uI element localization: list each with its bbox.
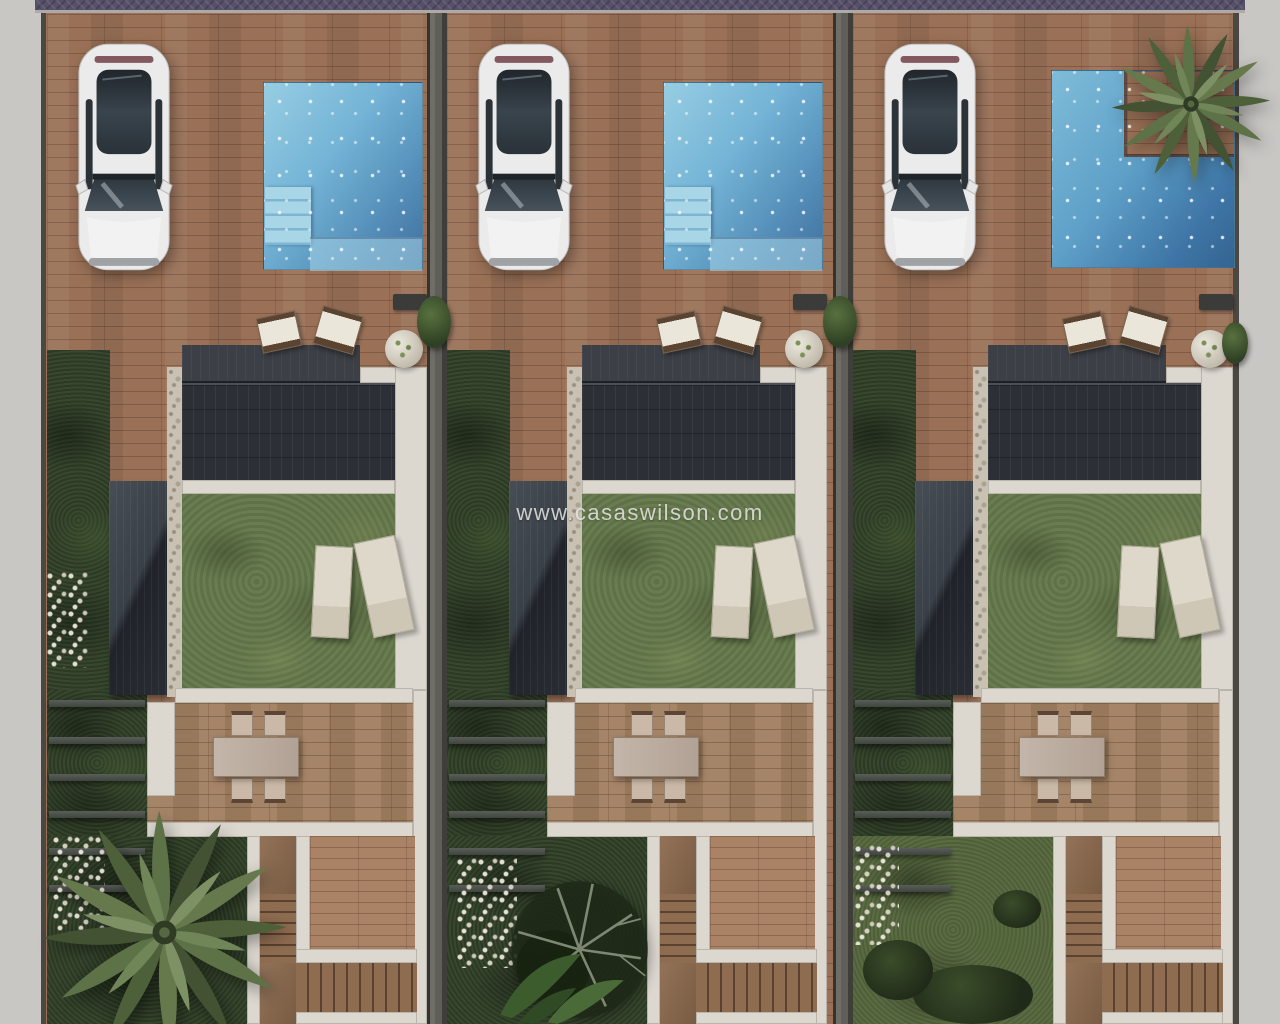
wall-shrub [823, 296, 857, 348]
dining-chair [1070, 711, 1092, 736]
tiled-roof [988, 383, 1201, 480]
plant [789, 334, 819, 364]
dining-table [613, 737, 699, 777]
site-plan-render: www.casaswilson.com [0, 0, 1280, 1024]
white-car [73, 38, 175, 278]
tiled-roof [582, 383, 795, 480]
white-flowers [47, 572, 89, 668]
white-path [547, 702, 575, 796]
pergola-beam [449, 774, 545, 781]
brick-patio [310, 836, 415, 949]
pergola-beam [49, 737, 145, 744]
sun-lounger [311, 545, 354, 639]
pool-shelf [310, 237, 422, 271]
wall-shrub [417, 296, 451, 348]
white-path [296, 836, 310, 963]
white-path [1053, 836, 1066, 1024]
white-path [360, 367, 397, 383]
stairs-horizontal [296, 963, 417, 1012]
white-path [575, 688, 813, 703]
white-path [1102, 1012, 1223, 1024]
pergola-beam [449, 737, 545, 744]
white-path [696, 949, 817, 963]
villa-unit-1 [47, 0, 427, 1024]
plant [1195, 334, 1225, 364]
stairs-horizontal [696, 963, 817, 1012]
pool-steps [265, 187, 311, 245]
potted-plant [385, 330, 423, 368]
stairs-vertical [1066, 836, 1102, 1024]
dining-chair [664, 778, 686, 803]
party-wall [427, 0, 447, 1024]
white-path [1166, 367, 1203, 383]
white-path [1102, 836, 1116, 963]
potted-plant [785, 330, 823, 368]
dining-chair [631, 778, 653, 803]
swimming-pool [663, 82, 823, 270]
party-wall [833, 0, 853, 1024]
stone-wall [973, 367, 988, 697]
stone-wall [167, 367, 182, 697]
street-roof-strip [35, 0, 1245, 13]
palm-tree [32, 800, 297, 1024]
door-mat [1199, 294, 1233, 310]
dining-table [213, 737, 299, 777]
pergola-beam [449, 848, 545, 855]
pergola-beam [449, 811, 545, 818]
sun-lounger [711, 545, 754, 639]
brick-patio [710, 836, 815, 949]
side-garden-strip [853, 350, 916, 691]
dining-chair [631, 711, 653, 736]
dining-chair [231, 711, 253, 736]
white-path [296, 1012, 417, 1024]
white-path [296, 949, 417, 963]
white-path [953, 702, 981, 796]
palm-tree [1105, 18, 1277, 190]
white-path [1102, 949, 1223, 963]
dining-chair [1070, 778, 1092, 803]
stone-wall [567, 367, 582, 697]
plant [389, 334, 419, 364]
white-path [696, 836, 710, 963]
pergola-beam [49, 700, 145, 707]
white-car [473, 38, 575, 278]
shrub [863, 940, 933, 1000]
stair-landing [1066, 963, 1102, 1024]
dining-chair [664, 711, 686, 736]
villa-unit-3 [853, 0, 1232, 1024]
white-path [988, 480, 1201, 494]
white-path [582, 480, 795, 494]
pergola-beam [449, 700, 545, 707]
pergola-beam [855, 774, 951, 781]
white-car [879, 38, 981, 278]
white-path [760, 367, 797, 383]
pergola-beam [855, 737, 951, 744]
stairs-horizontal [1102, 963, 1223, 1012]
white-flowers [855, 845, 899, 945]
dining-table [1019, 737, 1105, 777]
sun-lounger [1117, 545, 1160, 639]
pergola-beam [855, 811, 951, 818]
white-path [147, 702, 175, 796]
wall-shrub [1222, 322, 1248, 364]
dining-chair [1037, 711, 1059, 736]
white-path [795, 367, 827, 690]
white-path [182, 480, 395, 494]
pool-shelf [710, 237, 822, 271]
white-path [175, 688, 413, 703]
banana-plants [487, 948, 637, 1024]
white-path [696, 1012, 817, 1024]
stair-landing [1066, 836, 1102, 894]
pitched-roof [915, 481, 975, 695]
white-path [1201, 367, 1233, 690]
shrub [993, 890, 1041, 928]
pitched-roof [109, 481, 169, 695]
pergola-beam [855, 700, 951, 707]
white-path [395, 367, 427, 690]
pergola-beam [49, 774, 145, 781]
white-path [981, 688, 1219, 703]
side-garden-strip [447, 350, 510, 691]
swimming-pool [263, 82, 423, 270]
watermark-text: www.casaswilson.com [516, 500, 763, 526]
dining-chair [264, 711, 286, 736]
white-path [953, 822, 1219, 837]
door-mat [793, 294, 827, 310]
white-path [547, 822, 813, 837]
tiled-roof [182, 383, 395, 480]
dining-chair [1037, 778, 1059, 803]
brick-patio [1116, 836, 1221, 949]
pool-steps [665, 187, 711, 245]
